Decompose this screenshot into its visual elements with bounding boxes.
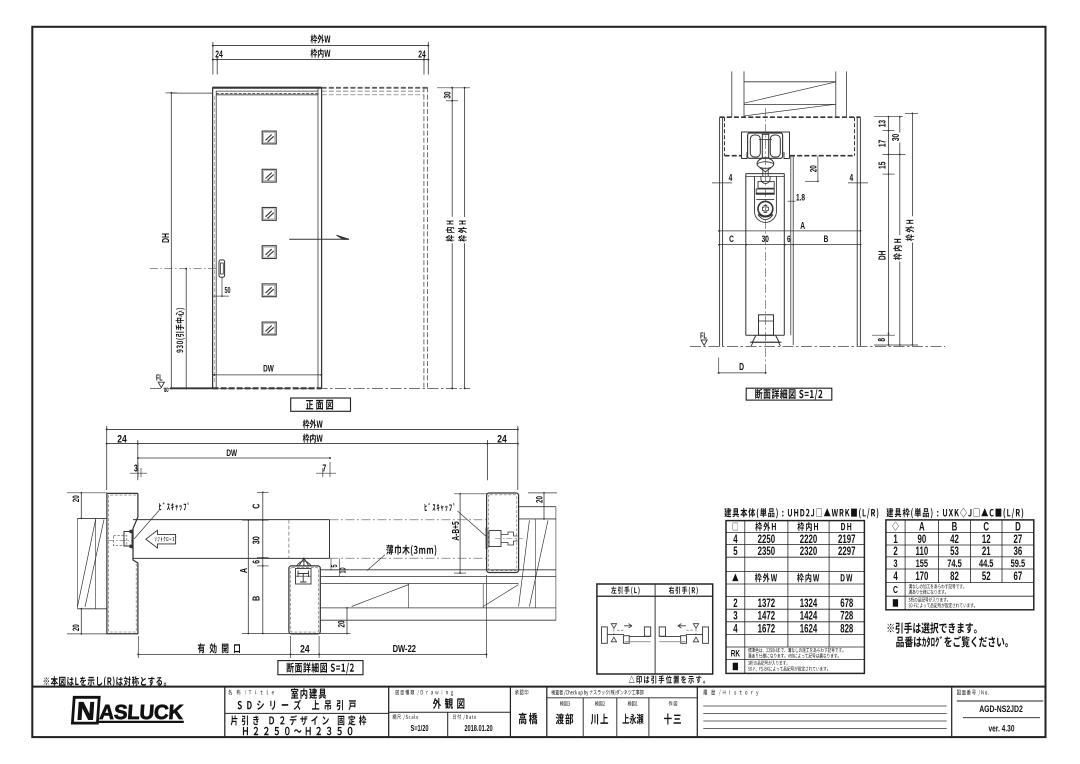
svg-text:2018.01.20: 2018.01.20 [464,724,492,733]
svg-text:170: 170 [915,571,928,584]
svg-text:C: C [893,584,898,596]
svg-text:155: 155 [916,558,928,570]
svg-text:B: B [824,234,829,245]
svg-text:20: 20 [808,165,819,173]
svg-text:2: 2 [733,598,738,611]
svg-text:3: 3 [134,462,138,474]
svg-text:24: 24 [300,643,310,655]
svg-text:4: 4 [729,172,733,184]
svg-text:DH: DH [876,251,888,261]
svg-text:44.5: 44.5 [979,558,994,570]
svg-text:30: 30 [443,91,454,99]
svg-text:AGD-NS2JD2: AGD-NS2JD2 [979,703,1023,714]
svg-text:ASLUCK: ASLUCK [99,701,185,724]
svg-text:2297: 2297 [838,546,856,559]
svg-text:A: A [800,219,805,231]
svg-text:4: 4 [893,571,898,584]
svg-text:S=1/20: S=1/20 [410,724,428,733]
svg-text:2197: 2197 [838,533,856,546]
svg-text:2250: 2250 [758,533,776,546]
svg-text:1: 1 [893,534,898,547]
svg-text:90: 90 [917,534,926,547]
svg-text:13: 13 [876,120,888,128]
svg-text:C: C [250,503,262,509]
svg-text:4: 4 [849,172,853,184]
svg-text:17: 17 [876,139,888,147]
svg-text:1324: 1324 [800,598,818,611]
svg-text:10: 10 [340,567,348,573]
svg-text:1424: 1424 [800,610,818,623]
svg-text:N: N [76,698,96,726]
svg-text:5: 5 [733,546,738,559]
svg-text:1.8: 1.8 [796,192,805,203]
svg-text:4: 4 [733,623,738,636]
svg-text:6: 6 [250,560,262,564]
svg-text:24: 24 [418,48,426,60]
svg-text:30: 30 [890,134,902,142]
svg-text:2320: 2320 [800,546,818,559]
svg-text:DH: DH [160,233,172,243]
svg-text:D: D [739,360,744,372]
svg-text:67: 67 [1014,571,1023,584]
svg-text:4: 4 [733,533,738,546]
svg-text:3: 3 [733,610,738,623]
svg-text:42: 42 [950,534,959,547]
svg-text:12: 12 [982,534,991,547]
svg-text:ver. 4.30: ver. 4.30 [988,724,1015,734]
svg-text:DW-22: DW-22 [393,643,416,654]
svg-text:59.5: 59.5 [1011,558,1026,570]
svg-text:5: 5 [331,564,339,567]
svg-text:20: 20 [336,620,347,627]
svg-text:B: B [952,521,958,534]
svg-text:RK: RK [731,649,740,660]
svg-text:D: D [1015,521,1021,534]
svg-text:1472: 1472 [758,610,776,623]
svg-text:6: 6 [787,234,791,245]
svg-text:30: 30 [250,536,262,544]
svg-text:DW: DW [226,448,237,459]
svg-text:3: 3 [893,558,897,570]
svg-text:C: C [983,521,989,534]
svg-text:20: 20 [534,496,545,503]
svg-text:DW: DW [263,364,274,375]
svg-text:50: 50 [224,287,230,295]
svg-text:728: 728 [840,610,853,623]
svg-text:B: B [250,595,262,601]
svg-text:82: 82 [950,571,959,584]
svg-text:52: 52 [982,571,991,584]
svg-text:27: 27 [1014,534,1023,547]
svg-text:20: 20 [71,495,82,502]
svg-text:24: 24 [215,48,223,60]
svg-text:A: A [919,521,925,534]
svg-text:74.5: 74.5 [947,558,962,570]
svg-text:2350: 2350 [758,546,776,559]
svg-text:20: 20 [71,624,82,631]
svg-text:30: 30 [762,234,770,245]
svg-text:15: 15 [876,161,888,169]
svg-text:828: 828 [840,623,853,636]
svg-text:C: C [729,234,734,245]
svg-text:1372: 1372 [758,598,776,611]
svg-text:8: 8 [876,338,888,342]
svg-text:1624: 1624 [800,623,818,636]
svg-text:1672: 1672 [758,623,776,636]
svg-text:2220: 2220 [800,533,818,546]
svg-text:678: 678 [840,598,853,611]
svg-text:A-B+5: A-B+5 [450,521,462,541]
svg-text:24: 24 [117,433,127,445]
svg-text:24: 24 [497,433,507,445]
svg-text:A: A [238,568,250,574]
